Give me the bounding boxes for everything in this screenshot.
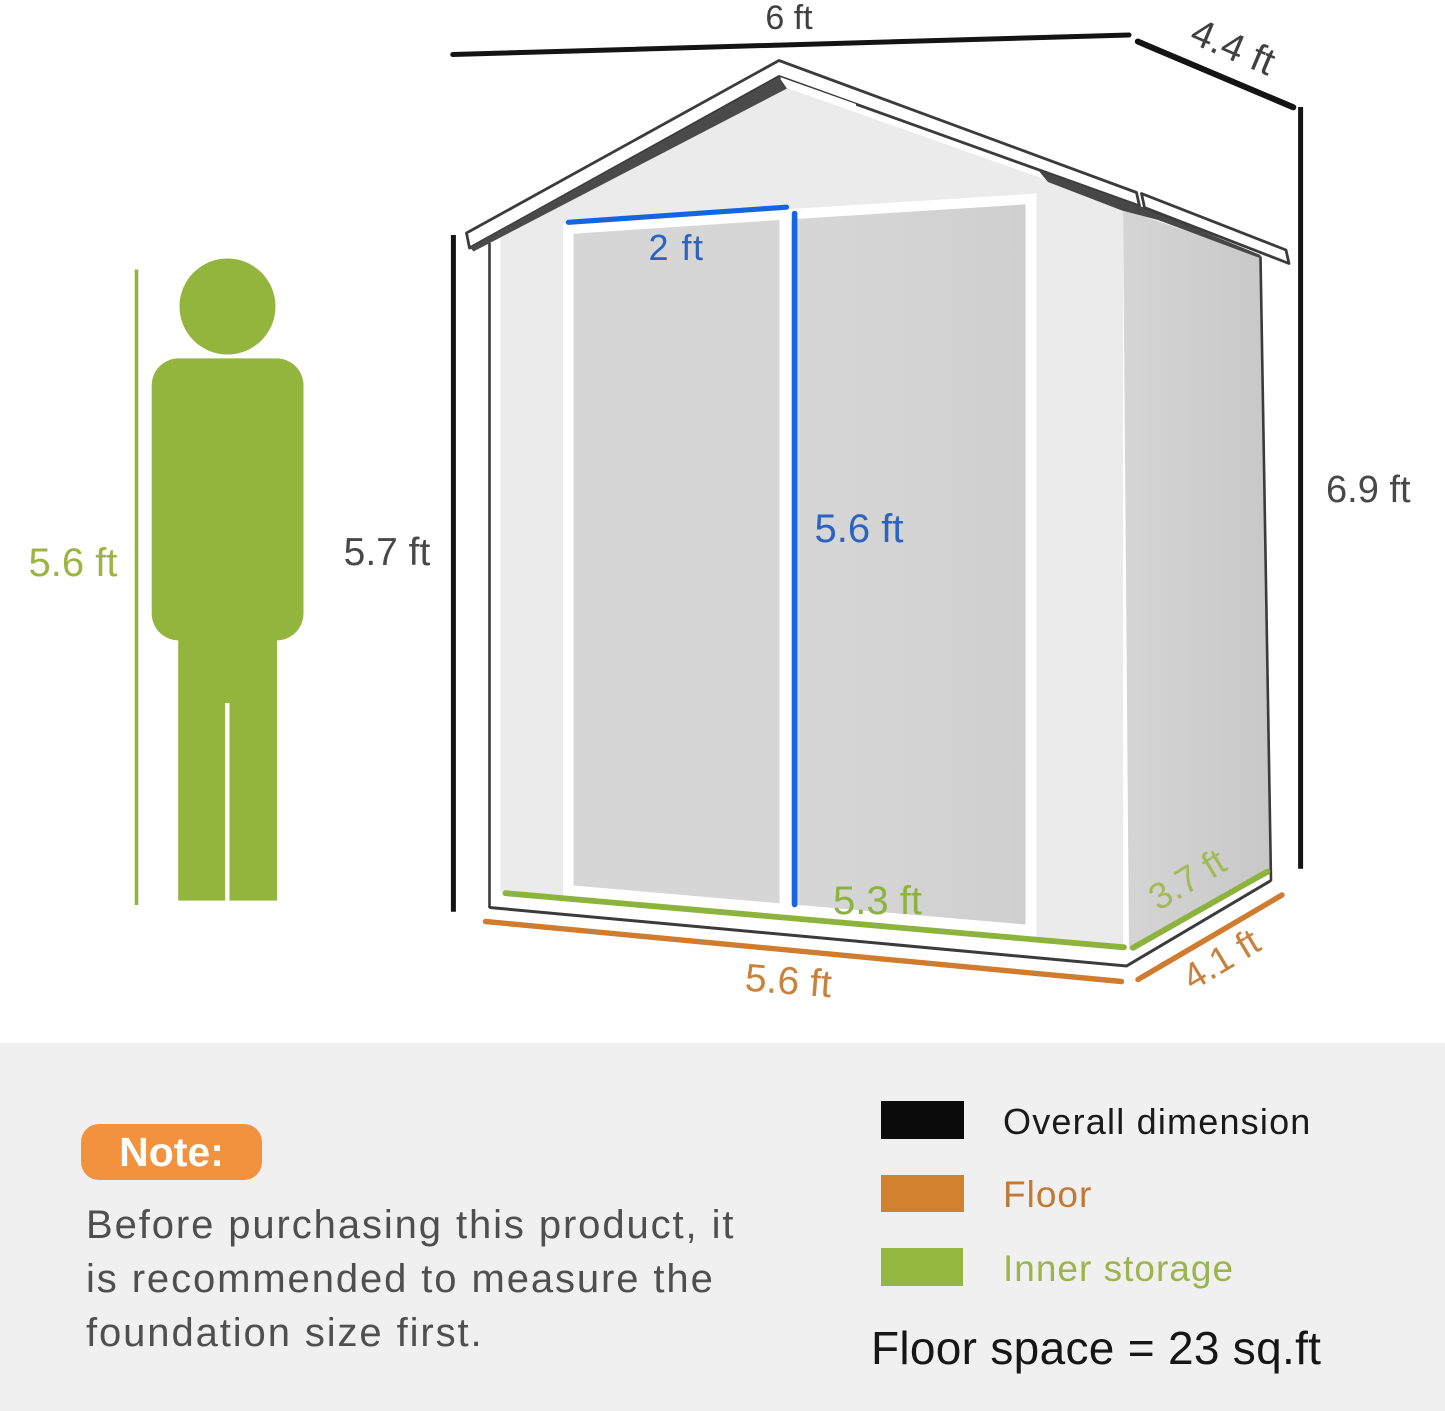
svg-text:6 ft: 6 ft	[765, 0, 813, 37]
svg-text:2 ft: 2 ft	[648, 227, 704, 268]
svg-text:6.9 ft: 6.9 ft	[1326, 469, 1411, 511]
svg-text:5.6 ft: 5.6 ft	[815, 507, 904, 551]
svg-text:5.3 ft: 5.3 ft	[833, 879, 922, 923]
svg-text:5.6 ft: 5.6 ft	[29, 541, 118, 585]
svg-text:4.4 ft: 4.4 ft	[1184, 11, 1281, 85]
svg-text:5.6 ft: 5.6 ft	[743, 957, 833, 1007]
svg-text:5.7 ft: 5.7 ft	[344, 531, 431, 574]
